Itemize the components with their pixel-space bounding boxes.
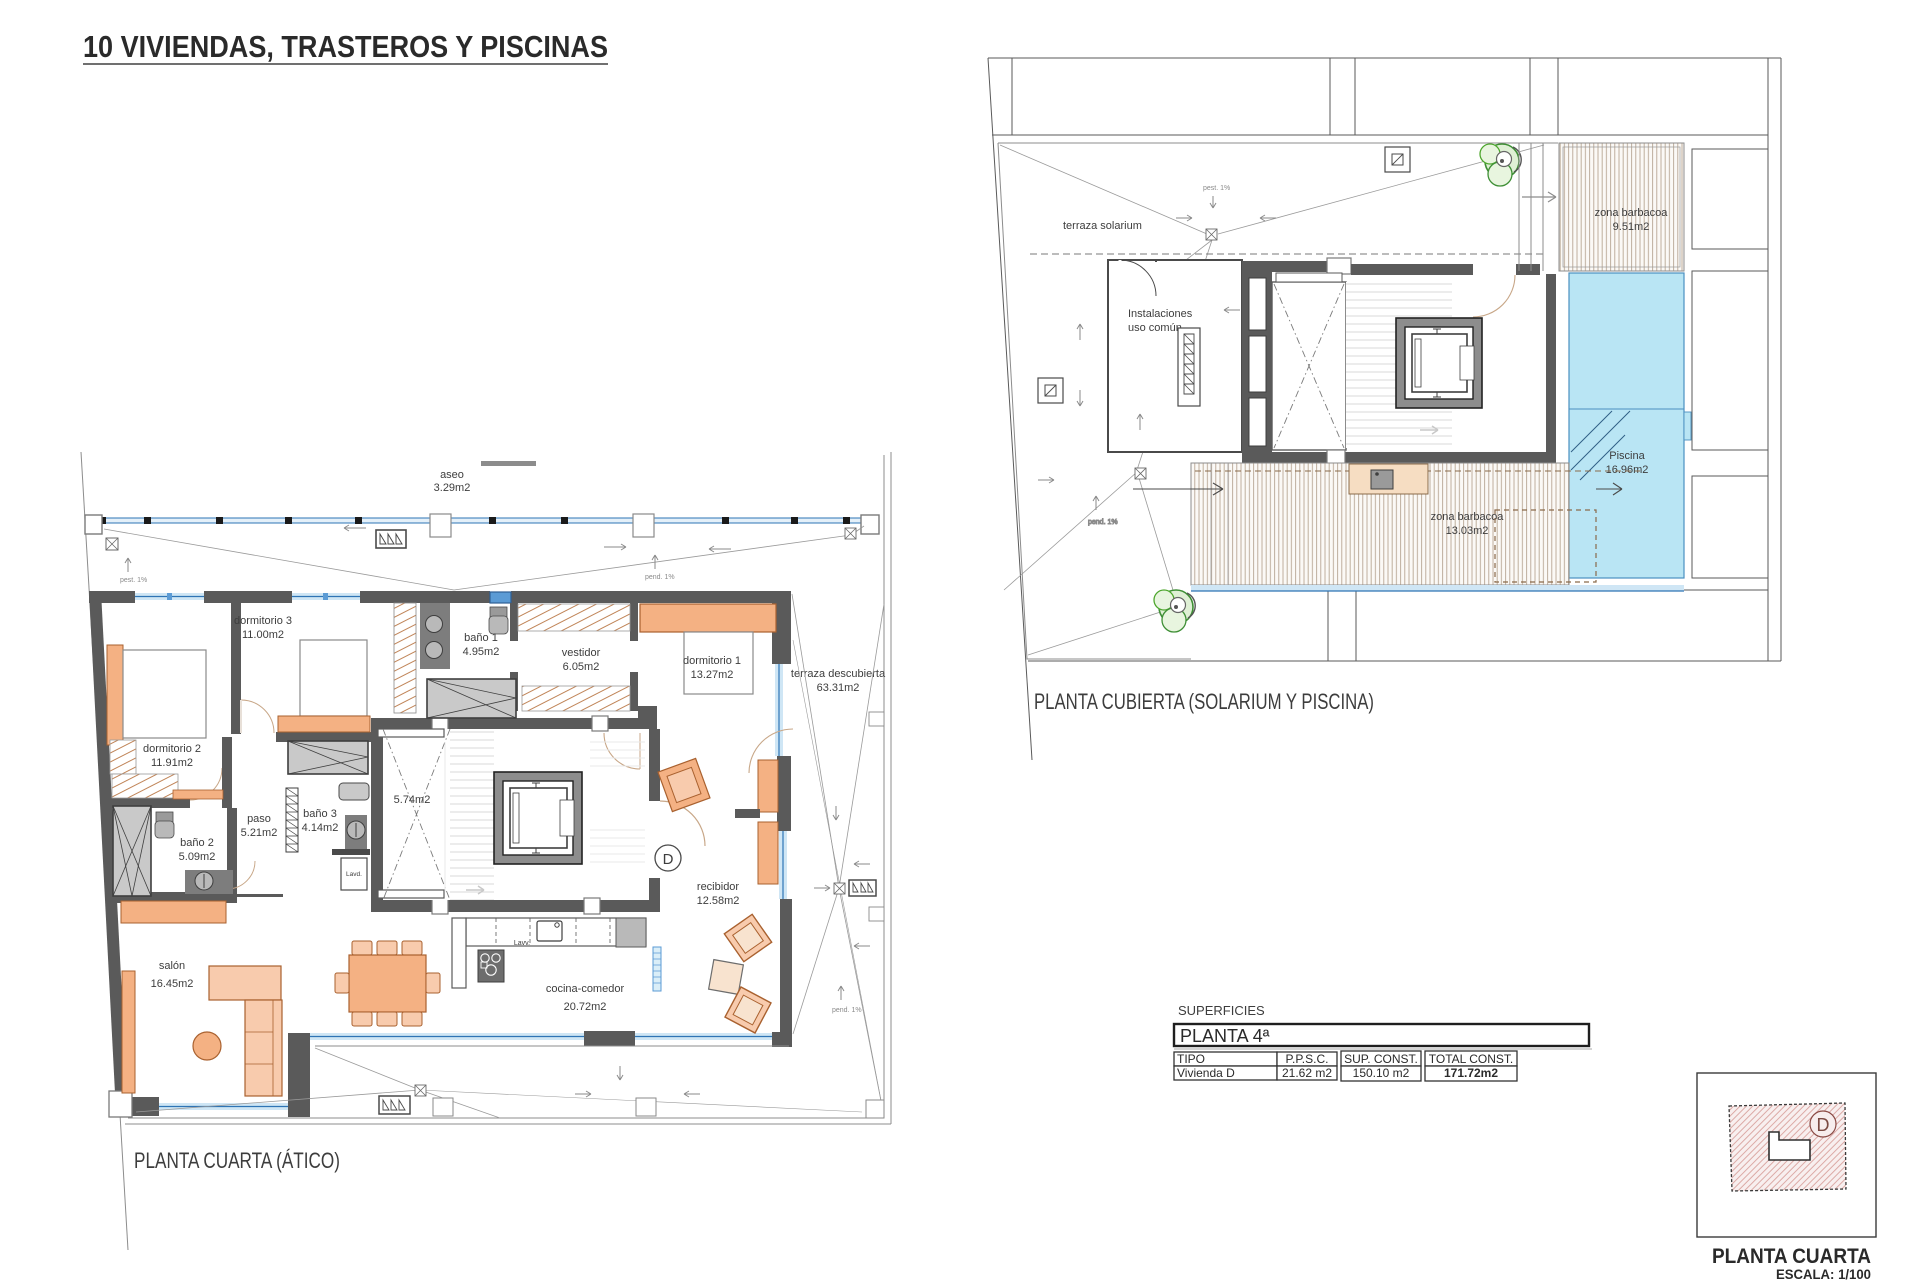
svg-text:11.00m2: 11.00m2 (242, 629, 284, 641)
svg-text:pest. 1%: pest. 1% (120, 577, 147, 584)
svg-text:Lavv.: Lavv. (514, 940, 530, 947)
svg-text:salón: salón (159, 960, 185, 972)
svg-text:PLANTA CUARTA (ÁTICO): PLANTA CUARTA (ÁTICO) (134, 1148, 340, 1173)
svg-text:baño 2: baño 2 (180, 837, 214, 849)
svg-text:PLANTA CUBIERTA (SOLARIUM Y PI: PLANTA CUBIERTA (SOLARIUM Y PISCINA) (1034, 689, 1374, 714)
svg-text:pend. 1%: pend. 1% (832, 1007, 862, 1014)
svg-text:Vivienda D: Vivienda D (1177, 1066, 1235, 1080)
svg-text:3.29m2: 3.29m2 (434, 482, 471, 494)
svg-text:13.03m2: 13.03m2 (1446, 525, 1489, 537)
svg-text:paso: paso (247, 813, 271, 825)
svg-text:11.91m2: 11.91m2 (151, 757, 193, 769)
svg-text:21.62 m2: 21.62 m2 (1282, 1066, 1332, 1080)
svg-text:150.10 m2: 150.10 m2 (1353, 1066, 1410, 1080)
svg-text:D: D (663, 851, 674, 868)
svg-text:10 VIVIENDAS, TRASTEROS Y PISC: 10 VIVIENDAS, TRASTEROS Y PISCINAS (83, 29, 608, 64)
svg-text:Instalaciones: Instalaciones (1128, 308, 1193, 320)
svg-text:SUPERFICIES: SUPERFICIES (1178, 1003, 1265, 1018)
svg-text:PLANTA CUARTA: PLANTA CUARTA (1712, 1245, 1871, 1268)
svg-text:9.51m2: 9.51m2 (1613, 221, 1650, 233)
svg-text:recibidor: recibidor (697, 881, 740, 893)
svg-text:TIPO: TIPO (1177, 1052, 1205, 1066)
svg-text:Piscina: Piscina (1609, 450, 1645, 462)
svg-text:zona barbacoa: zona barbacoa (1595, 207, 1669, 219)
svg-text:ESCALA: 1/100: ESCALA: 1/100 (1776, 1267, 1871, 1280)
svg-text:TOTAL CONST.: TOTAL CONST. (1429, 1052, 1513, 1066)
svg-text:4.14m2: 4.14m2 (302, 822, 339, 834)
svg-text:16.45m2: 16.45m2 (151, 978, 194, 990)
svg-text:5.21m2: 5.21m2 (241, 827, 278, 839)
svg-text:cocina-comedor: cocina-comedor (546, 983, 625, 995)
svg-text:vestidor: vestidor (562, 647, 601, 659)
svg-text:D: D (1817, 1115, 1830, 1135)
svg-text:13.27m2: 13.27m2 (691, 669, 734, 681)
svg-text:171.72m2: 171.72m2 (1444, 1066, 1498, 1080)
svg-text:Lavd.: Lavd. (346, 871, 362, 878)
svg-text:20.72m2: 20.72m2 (564, 1001, 607, 1013)
svg-text:pend. 1%: pend. 1% (1088, 519, 1118, 526)
svg-text:dormitorio 3: dormitorio 3 (234, 615, 292, 627)
svg-text:16.96m2: 16.96m2 (1606, 464, 1649, 476)
svg-text:dormitorio 1: dormitorio 1 (683, 655, 741, 667)
svg-text:12.58m2: 12.58m2 (697, 895, 740, 907)
svg-text:P.P.S.C.: P.P.S.C. (1286, 1052, 1329, 1066)
svg-text:uso común: uso común (1128, 322, 1182, 334)
svg-text:baño 1: baño 1 (464, 632, 498, 644)
svg-text:zona barbacoa: zona barbacoa (1431, 511, 1505, 523)
svg-text:pend. 1%: pend. 1% (645, 574, 675, 581)
svg-text:terraza solarium: terraza solarium (1063, 220, 1142, 232)
svg-text:4.95m2: 4.95m2 (463, 646, 500, 658)
svg-text:5.09m2: 5.09m2 (179, 851, 216, 863)
svg-text:PLANTA 4ª: PLANTA 4ª (1180, 1026, 1270, 1046)
svg-text:aseo: aseo (440, 469, 464, 481)
svg-text:baño 3: baño 3 (303, 808, 337, 820)
svg-text:pest. 1%: pest. 1% (1203, 185, 1230, 192)
svg-text:5.74m2: 5.74m2 (394, 794, 431, 806)
svg-text:dormitorio 2: dormitorio 2 (143, 743, 201, 755)
svg-text:SUP. CONST.: SUP. CONST. (1344, 1052, 1418, 1066)
svg-text:63.31m2: 63.31m2 (817, 682, 860, 694)
svg-text:6.05m2: 6.05m2 (563, 661, 600, 673)
